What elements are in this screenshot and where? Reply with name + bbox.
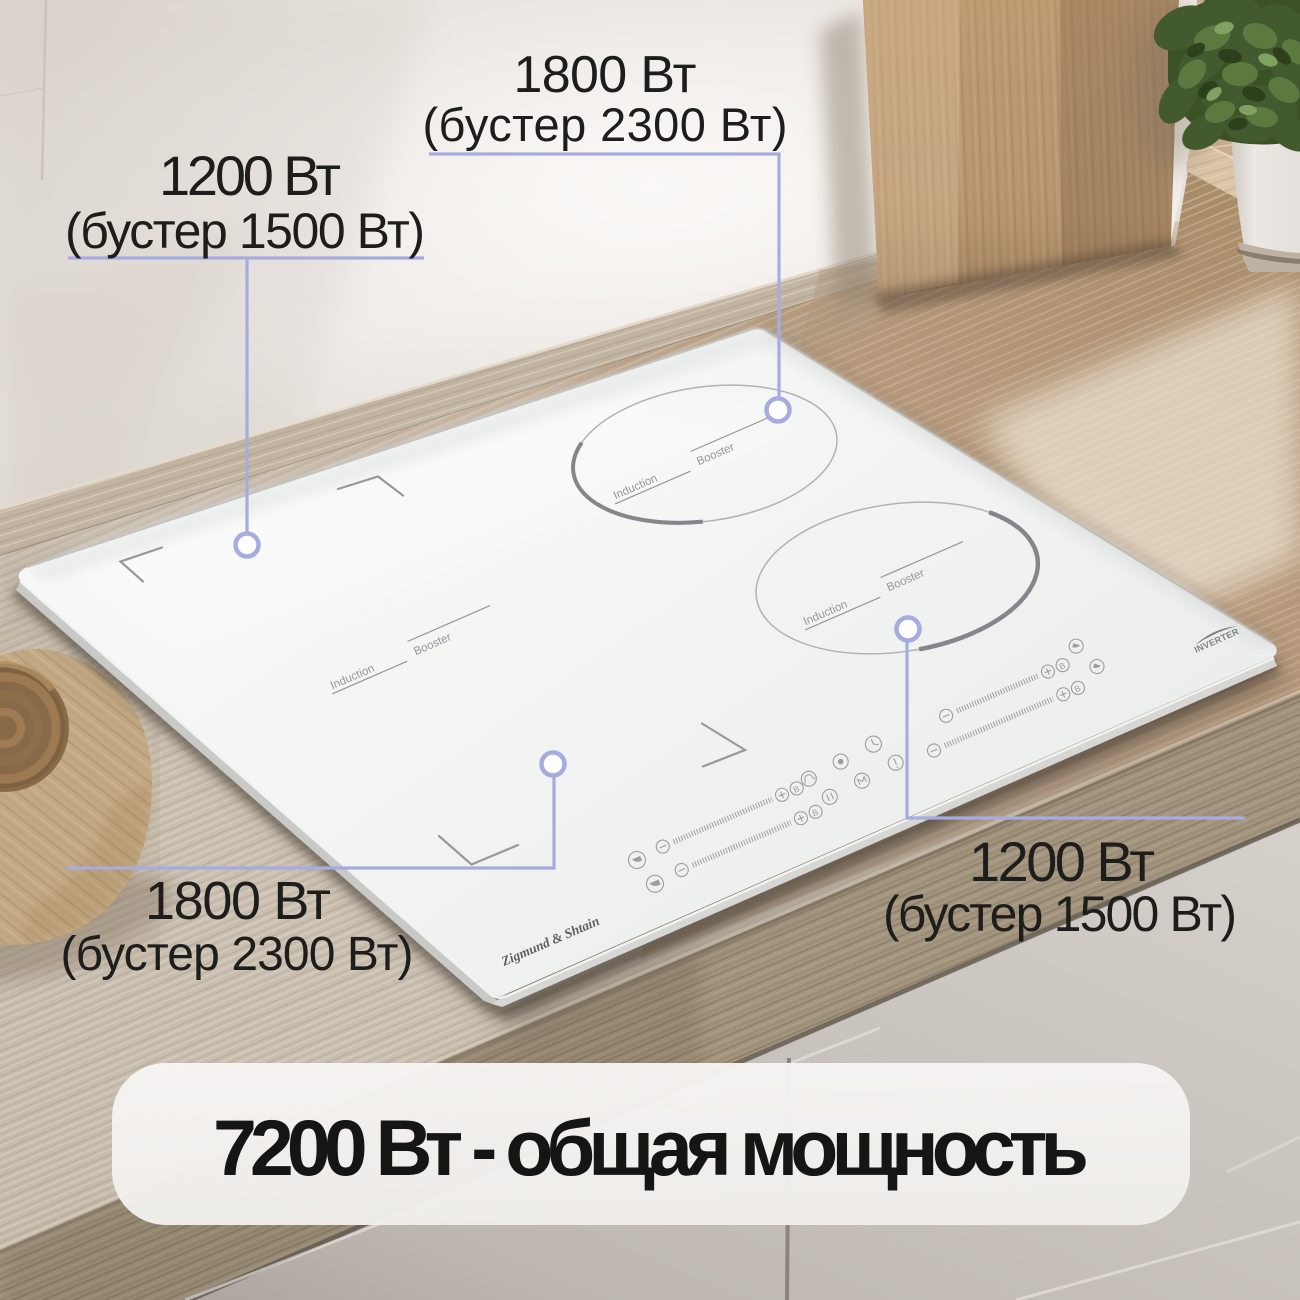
svg-text:1800 Вт: 1800 Вт	[145, 871, 331, 931]
svg-text:(бустер 1500 Вт): (бустер 1500 Вт)	[65, 203, 425, 259]
svg-text:1200 Вт: 1200 Вт	[159, 144, 341, 207]
svg-text:(бустер 2300 Вт): (бустер 2300 Вт)	[423, 98, 788, 151]
svg-text:7200 Вт - общая мощность: 7200 Вт - общая мощность	[213, 1103, 1089, 1192]
svg-text:1200 Вт: 1200 Вт	[969, 830, 1155, 893]
svg-text:1800 Вт: 1800 Вт	[514, 46, 697, 104]
svg-text:(бустер 2300 Вт): (бустер 2300 Вт)	[61, 928, 414, 981]
svg-text:(бустер 1500 Вт): (бустер 1500 Вт)	[883, 886, 1237, 942]
